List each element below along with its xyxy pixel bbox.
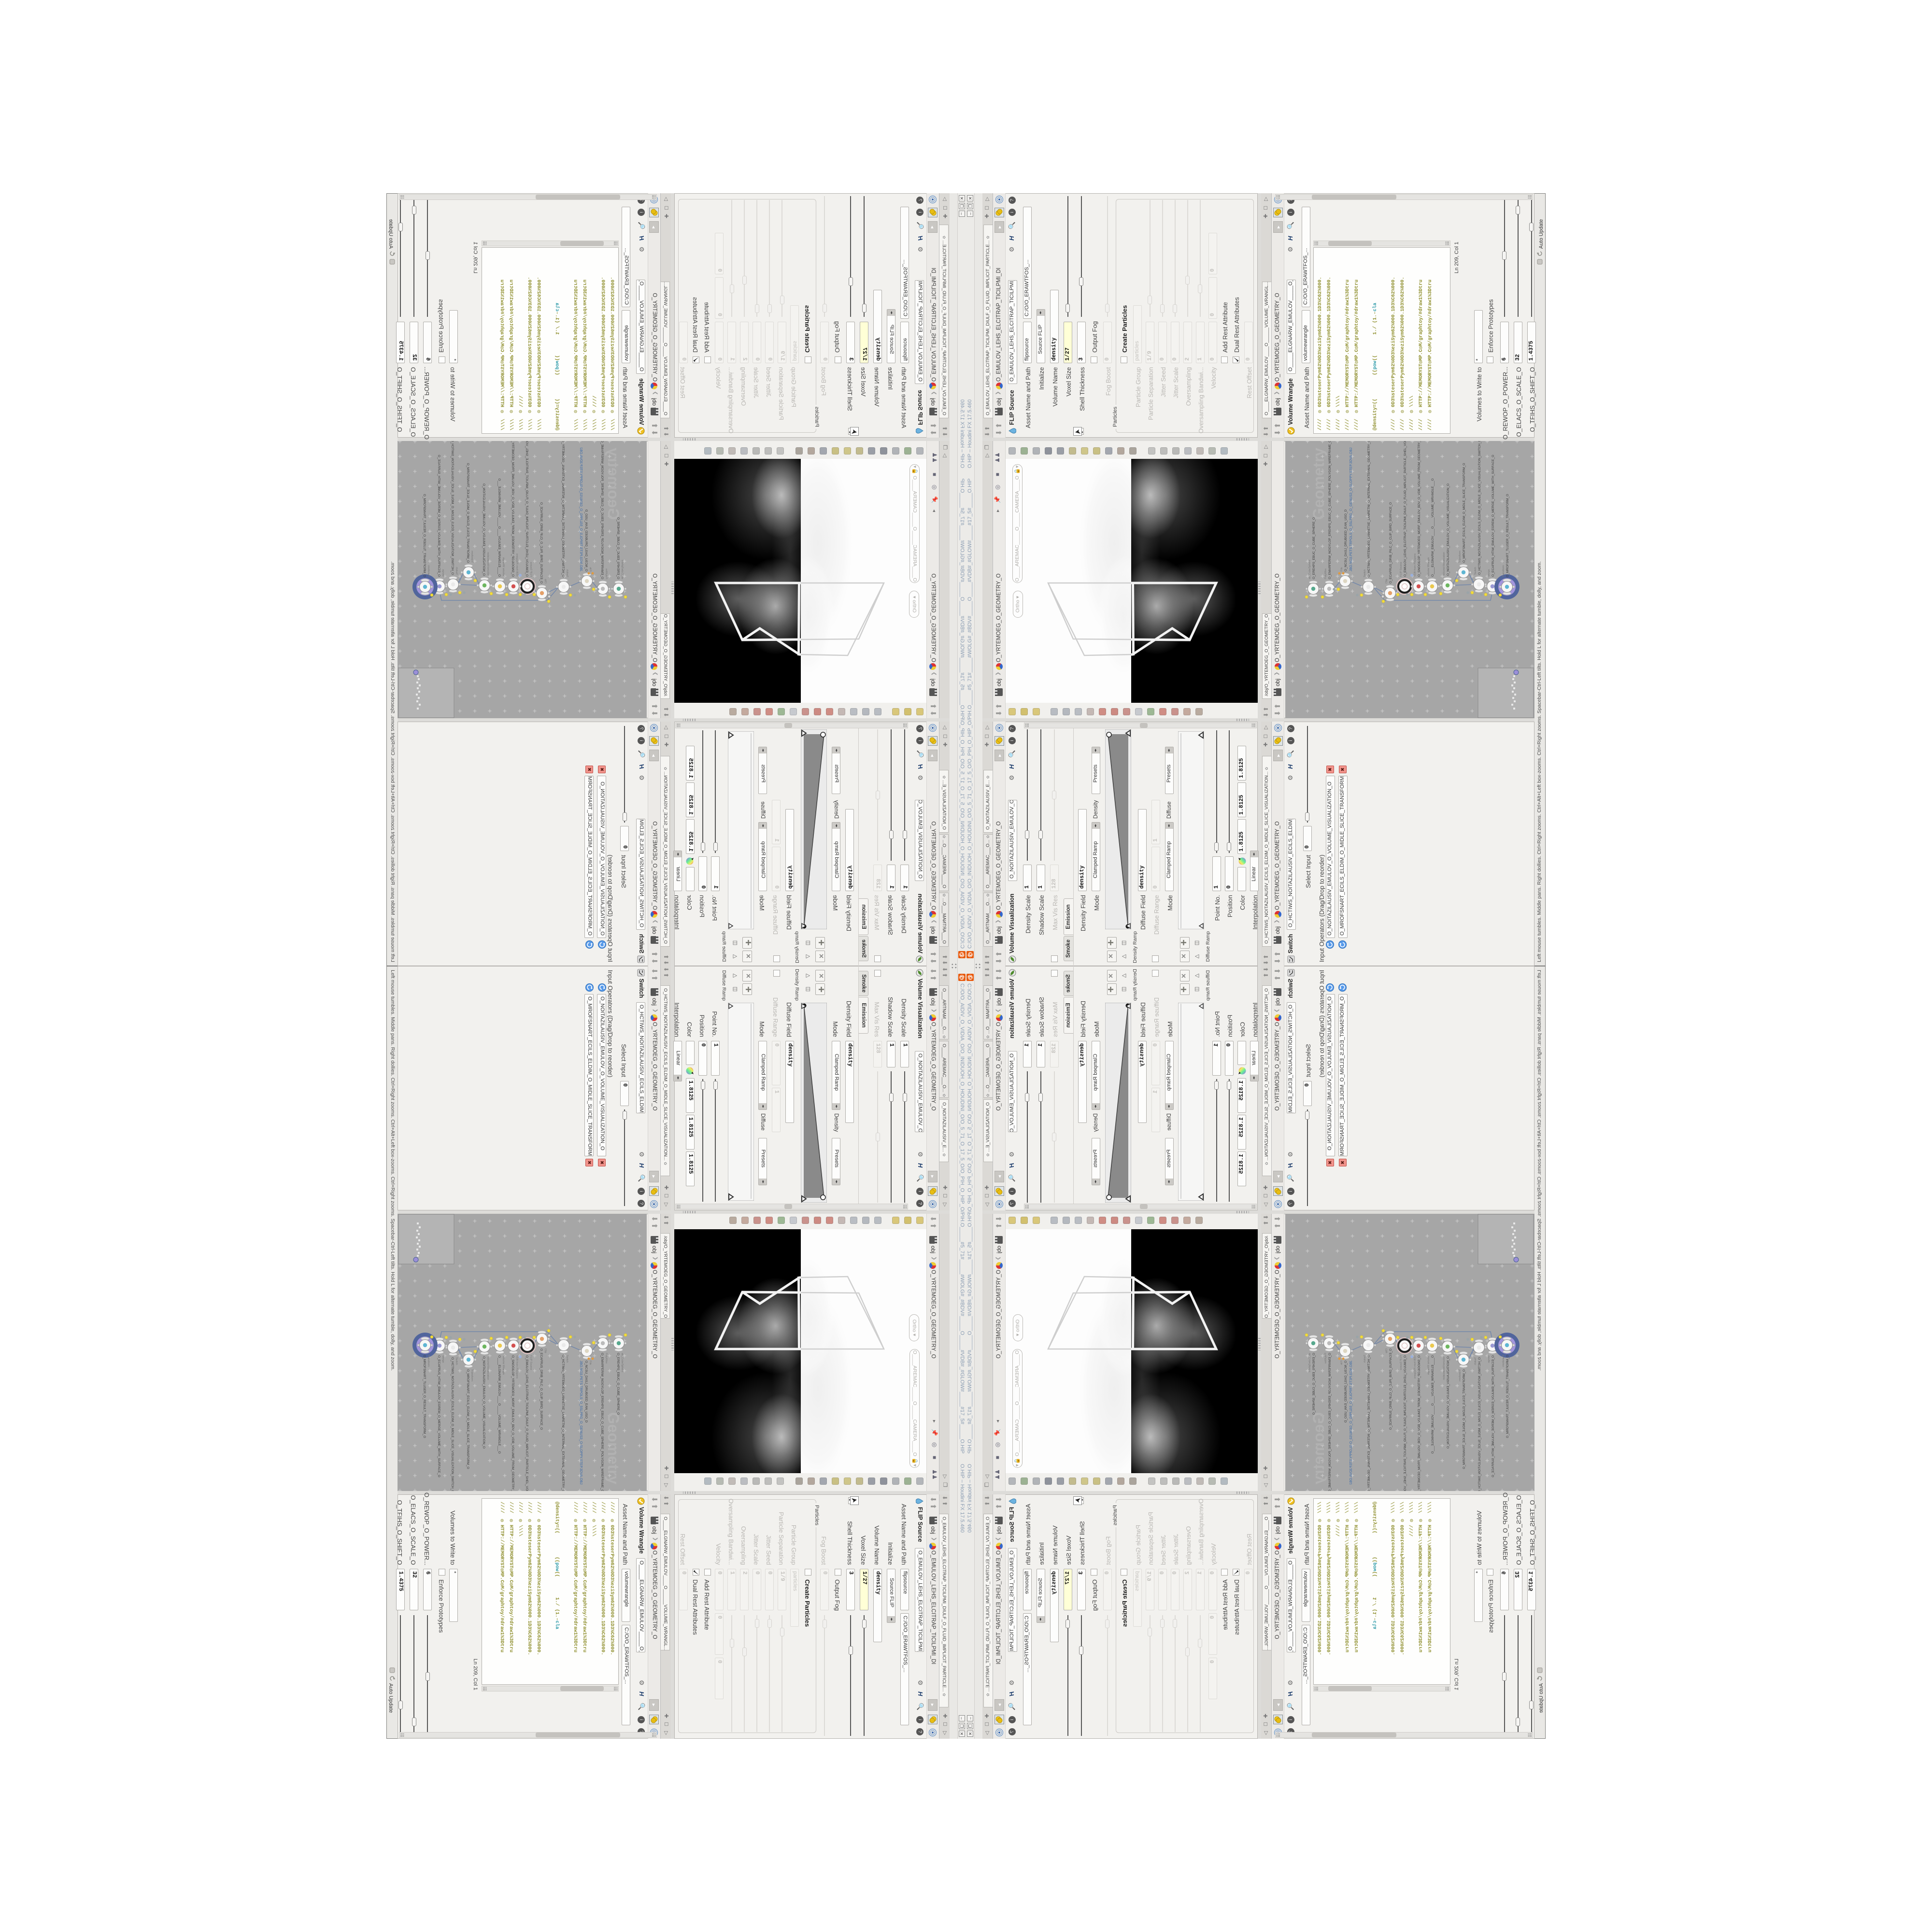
- svg-text:Transform: Transform: [470, 1369, 473, 1381]
- svg-text:PolyWire: PolyWire: [1324, 1353, 1327, 1364]
- svg-text:Merge: Merge: [441, 569, 444, 577]
- svg-text:ae_CubeSphere: ae_CubeSphere: [621, 560, 624, 579]
- svg-text:O_NOITAZILAUSIV_EMULOV_O_VOLUM: O_NOITAZILAUSIV_EMULOV_O_VOLUME_VISUALIZ…: [1447, 483, 1450, 576]
- svg-text:Merge: Merge: [1488, 569, 1491, 577]
- svg-text:VDB from Polygons: VDB from Polygons: [515, 1355, 518, 1378]
- svg-text:O_MROFSNART_TLUSER_O_RESULT_TR: O_MROFSNART_TLUSER_O_RESULT_TRANSFORM_O: [1506, 494, 1509, 577]
- svg-text:Clip: Clip: [1385, 1349, 1388, 1353]
- svg-text:Switch: Switch: [455, 1357, 458, 1365]
- svg-text:Switch: Switch: [1364, 1355, 1366, 1363]
- svg-text:O____ELGNARW_EMULOV____O_____V: O____ELGNARW_EMULOV____O_____VOLUME_WRAN…: [1431, 1355, 1435, 1454]
- svg-text:VDB from Polygons: VDB from Polygons: [515, 554, 518, 577]
- svg-text:VolumeVisualization: VolumeVisualization: [1443, 1356, 1446, 1380]
- svg-text:O_ECAFRUS_HTIW_EMULOV_EGREM_O_: O_ECAFRUS_HTIW_EMULOV_EGREM_O_MERGE_VOLU…: [1492, 1355, 1495, 1477]
- svg-text:O_HCTIWS_NOITAZILAUSIV_ECILS_E: O_HCTIWS_NOITAZILAUSIV_ECILS_ELDIM_O_MID…: [1478, 1357, 1481, 1491]
- svg-text:O_NOITAZILAUSIV_EMULOV_O_VOLUM: O_NOITAZILAUSIV_EMULOV_O_VOLUME_VISUALIZ…: [482, 483, 485, 576]
- svg-text:O_ECAFRUS_HTIW_EMULOV_EGREM_O_: O_ECAFRUS_HTIW_EMULOV_EGREM_O_MERGE_VOLU…: [437, 455, 440, 577]
- svg-text:Transform: Transform: [1502, 565, 1505, 577]
- svg-text:Switch: Switch: [566, 569, 568, 577]
- svg-text:Transform: Transform: [470, 551, 473, 563]
- svg-text:O_EMULOV_LEHS_ELCITRAP_TICILPM: O_EMULOV_LEHS_ELCITRAP_TICILPMI_DIULF_O_…: [1404, 441, 1407, 577]
- svg-text:JBO.NO3.PETS.TRPOLS_O_5SLPRG_O: JBO.NO3.PETS.TRPOLS_O_5SLPRG_O_GENUS3_O-…: [579, 1361, 582, 1484]
- svg-text:O_SNOGILOP_YRTEMOEG_MORF_EMULO: O_SNOGILOP_YRTEMOEG_MORF_EMULOV_BDV_O_VD…: [1418, 441, 1421, 577]
- svg-text:O_ECAFRUS_HTIW_EMULOV_EGREM_O_: O_ECAFRUS_HTIW_EMULOV_EGREM_O_MERGE_VOLU…: [1492, 455, 1495, 577]
- svg-text:O_SNOGILOP_YRTEMOEG_MORF_EMULO: O_SNOGILOP_YRTEMOEG_MORF_EMULOV_BDV_O_VD…: [1418, 1355, 1421, 1491]
- svg-text:Volume Wrangle: Volume Wrangle: [1427, 1355, 1430, 1375]
- svg-text:O_EMARFERIW_NOGYLOP_EREHPS_EBU: O_EMARFERIW_NOGYLOP_EREHPS_EBUC_O_CUBE_S…: [600, 1353, 604, 1491]
- svg-text:Geometry: Geometry: [605, 1412, 622, 1485]
- svg-text:PolyWire: PolyWire: [605, 1353, 608, 1364]
- svg-text:Volume Wrangle: Volume Wrangle: [1427, 557, 1430, 577]
- svg-text:O_MROFSNART_TLUSER_O_RESULT_TR: O_MROFSNART_TLUSER_O_RESULT_TRANSFORM_O: [423, 1355, 426, 1438]
- svg-text:O_SNOGILOP_YRTEMOEG_MORF_EMULO: O_SNOGILOP_YRTEMOEG_MORF_EMULOV_BDV_O_VD…: [511, 1355, 514, 1491]
- svg-text:FLIP Source: FLIP Source: [1400, 1355, 1403, 1370]
- svg-text:O_ECAFRUS_DRIB_PILC_O_CLIP_BIR: O_ECAFRUS_DRIB_PILC_O_CLIP_BIRD_SURFACE_…: [1389, 502, 1392, 583]
- svg-text:Geometry: Geometry: [1310, 448, 1327, 520]
- svg-text:JBO.NO3.PETS.TRPOLS_O_5SLPRG_O: JBO.NO3.PETS.TRPOLS_O_5SLPRG_O_GENUS3_O-…: [1350, 448, 1353, 571]
- svg-text:Clip: Clip: [1385, 579, 1388, 583]
- svg-text:Switch: Switch: [1474, 567, 1477, 575]
- svg-text:FLIP Source: FLIP Source: [1400, 562, 1403, 577]
- svg-text:O____ELGNARW_EMULOV____O_____V: O____ELGNARW_EMULOV____O_____VOLUME_WRAN…: [1431, 478, 1435, 577]
- svg-text:O_HCTIWS_YRTEMOEG_LANRETXE_LAN: O_HCTIWS_YRTEMOEG_LANRETXE_LANRETNI_O_IN…: [1367, 1355, 1371, 1491]
- svg-text:Transform: Transform: [1459, 1369, 1462, 1381]
- svg-text:O_HCTIWS_YRTEMOEG_LANRETXE_LAN: O_HCTIWS_YRTEMOEG_LANRETXE_LANRETNI_O_IN…: [1367, 441, 1371, 577]
- svg-text:O_HCTIWS_NOITAZILAUSIV_ECILS_E: O_HCTIWS_NOITAZILAUSIV_ECILS_ELDIM_O_MID…: [451, 441, 454, 575]
- svg-text:Switch: Switch: [455, 567, 458, 575]
- svg-text:Merge: Merge: [441, 1355, 444, 1363]
- svg-text:ae_CubeSphere: ae_CubeSphere: [1308, 560, 1311, 579]
- svg-text:O_NOITAZILAUSIV_EMULOV_O_VOLUM: O_NOITAZILAUSIV_EMULOV_O_VOLUME_VISUALIZ…: [482, 1356, 485, 1449]
- svg-text:VolumeVisualization: VolumeVisualization: [486, 1356, 489, 1380]
- svg-text:JBO.NO3.PETS.TRPOLS_O_5SLPRG_O: JBO.NO3.PETS.TRPOLS_O_5SLPRG_O_GENUS3_O-…: [579, 448, 582, 571]
- svg-text:O_HCTIWS_YRTEMOEG_LANRETXE_LAN: O_HCTIWS_YRTEMOEG_LANRETXE_LANRETNI_O_IN…: [561, 441, 565, 577]
- svg-text:O_EMULOV_LEHS_ELCITRAP_TICILPM: O_EMULOV_LEHS_ELCITRAP_TICILPMI_DIULF_O_…: [525, 441, 528, 577]
- svg-text:Merge: Merge: [1488, 1355, 1491, 1363]
- svg-text:O_EREHPS_EBUC_O_CUBE_SPHERE_O: O_EREHPS_EBUC_O_CUBE_SPHERE_O: [616, 1353, 620, 1415]
- svg-text:O_MROFSNART_ECILS_ELDIM_O_MIDL: O_MROFSNART_ECILS_ELDIM_O_MIDLE_SLICE_TR…: [466, 463, 469, 563]
- svg-text:O_MROFSNART_ECILS_ELDIM_O_MIDL: O_MROFSNART_ECILS_ELDIM_O_MIDLE_SLICE_TR…: [1463, 463, 1466, 563]
- svg-text:O_MROFSNART_ECILS_ELDIM_O_MIDL: O_MROFSNART_ECILS_ELDIM_O_MIDLE_SLICE_TR…: [466, 1369, 469, 1469]
- svg-text:O_MROFSNART_TLUSER_O_RESULT_TR: O_MROFSNART_TLUSER_O_RESULT_TRANSFORM_O: [1506, 1355, 1509, 1438]
- svg-text:O_SNOGILOP_YRTEMOEG_MORF_EMULO: O_SNOGILOP_YRTEMOEG_MORF_EMULOV_BDV_O_VD…: [511, 441, 514, 577]
- svg-text:O_ECAFRUS_DRIB_PILC_O_CLIP_BIR: O_ECAFRUS_DRIB_PILC_O_CLIP_BIRD_SURFACE_…: [540, 502, 543, 583]
- svg-text:Transform: Transform: [1502, 1355, 1505, 1367]
- svg-text:Geometry: Geometry: [1310, 1412, 1327, 1485]
- svg-text:Switch: Switch: [1474, 1357, 1477, 1365]
- svg-text:Clip: Clip: [544, 579, 547, 583]
- svg-text:O_ECAFRUS_HTIW_EMULOV_EGREM_O_: O_ECAFRUS_HTIW_EMULOV_EGREM_O_MERGE_VOLU…: [437, 1355, 440, 1477]
- svg-text:O_EREHPS_EBUC_O_CUBE_SPHERE_O: O_EREHPS_EBUC_O_CUBE_SPHERE_O: [1312, 517, 1316, 579]
- svg-text:VDB from Polygons: VDB from Polygons: [1414, 1355, 1417, 1378]
- svg-text:O____ELGNARW_EMULOV____O_____V: O____ELGNARW_EMULOV____O_____VOLUME_WRAN…: [497, 1355, 501, 1454]
- svg-text:Switch: Switch: [566, 1355, 568, 1363]
- svg-text:File: File: [1340, 1361, 1343, 1365]
- svg-text:File: File: [589, 567, 592, 571]
- svg-text:O_EMARFERIW_NOGYLOP_EREHPS_EBU: O_EMARFERIW_NOGYLOP_EREHPS_EBUC_O_CUBE_S…: [600, 441, 604, 579]
- svg-text:O____ELGNARW_EMULOV____O_____V: O____ELGNARW_EMULOV____O_____VOLUME_WRAN…: [497, 478, 501, 577]
- svg-text:Volume Wrangle: Volume Wrangle: [502, 557, 505, 577]
- svg-text:O_NCSU_DASJ_DRUBGED_EAN_USO_D: O_NCSU_DASJ_DRUBGED_EAN_USO_D: [1344, 1361, 1348, 1422]
- svg-text:VolumeVisualization: VolumeVisualization: [486, 552, 489, 576]
- svg-text:Clip: Clip: [544, 1349, 547, 1353]
- svg-text:ae_CubeSphere: ae_CubeSphere: [1308, 1353, 1311, 1372]
- svg-text:Transform: Transform: [427, 565, 430, 577]
- svg-text:O_EMARFERIW_NOGYLOP_EREHPS_EBU: O_EMARFERIW_NOGYLOP_EREHPS_EBUC_O_CUBE_S…: [1328, 441, 1332, 579]
- svg-text:O_EMULOV_LEHS_ELCITRAP_TICILPM: O_EMULOV_LEHS_ELCITRAP_TICILPMI_DIULF_O_…: [1404, 1355, 1407, 1491]
- svg-text:O_MROFSNART_TLUSER_O_RESULT_TR: O_MROFSNART_TLUSER_O_RESULT_TRANSFORM_O: [423, 494, 426, 577]
- svg-text:O_ECAFRUS_DRIB_PILC_O_CLIP_BIR: O_ECAFRUS_DRIB_PILC_O_CLIP_BIRD_SURFACE_…: [540, 1349, 543, 1430]
- svg-text:O_NCSU_DASJ_DRUBGED_EAN_USO_D: O_NCSU_DASJ_DRUBGED_EAN_USO_D: [584, 510, 588, 571]
- svg-text:Geometry: Geometry: [605, 448, 622, 520]
- svg-text:O_HCTIWS_NOITAZILAUSIV_ECILS_E: O_HCTIWS_NOITAZILAUSIV_ECILS_ELDIM_O_MID…: [451, 1357, 454, 1491]
- svg-text:O_HCTIWS_NOITAZILAUSIV_ECILS_E: O_HCTIWS_NOITAZILAUSIV_ECILS_ELDIM_O_MID…: [1478, 441, 1481, 575]
- svg-text:O_EREHPS_EBUC_O_CUBE_SPHERE_O: O_EREHPS_EBUC_O_CUBE_SPHERE_O: [1312, 1353, 1316, 1415]
- svg-text:Transform: Transform: [427, 1355, 430, 1367]
- svg-text:PolyWire: PolyWire: [605, 568, 608, 579]
- svg-text:VDB from Polygons: VDB from Polygons: [1414, 554, 1417, 577]
- svg-text:O_NOITAZILAUSIV_EMULOV_O_VOLUM: O_NOITAZILAUSIV_EMULOV_O_VOLUME_VISUALIZ…: [1447, 1356, 1450, 1449]
- svg-text:O_ECAFRUS_DRIB_PILC_O_CLIP_BIR: O_ECAFRUS_DRIB_PILC_O_CLIP_BIRD_SURFACE_…: [1389, 1349, 1392, 1430]
- svg-text:Transform: Transform: [1459, 551, 1462, 563]
- svg-text:JBO.NO3.PETS.TRPOLS_O_5SLPRG_O: JBO.NO3.PETS.TRPOLS_O_5SLPRG_O_GENUS3_O-…: [1350, 1361, 1353, 1484]
- svg-text:O_MROFSNART_ECILS_ELDIM_O_MIDL: O_MROFSNART_ECILS_ELDIM_O_MIDLE_SLICE_TR…: [1463, 1369, 1466, 1469]
- svg-text:File: File: [1340, 567, 1343, 571]
- svg-text:FLIP Source: FLIP Source: [529, 562, 532, 577]
- svg-text:File: File: [589, 1361, 592, 1365]
- svg-text:PolyWire: PolyWire: [1324, 568, 1327, 579]
- svg-text:O_NCSU_DASJ_DRUBGED_EAN_USO_D: O_NCSU_DASJ_DRUBGED_EAN_USO_D: [584, 1361, 588, 1422]
- svg-text:FLIP Source: FLIP Source: [529, 1355, 532, 1370]
- svg-text:O_HCTIWS_YRTEMOEG_LANRETXE_LAN: O_HCTIWS_YRTEMOEG_LANRETXE_LANRETNI_O_IN…: [561, 1355, 565, 1491]
- svg-text:VolumeVisualization: VolumeVisualization: [1443, 552, 1446, 576]
- svg-text:ae_CubeSphere: ae_CubeSphere: [621, 1353, 624, 1372]
- svg-text:Switch: Switch: [1364, 569, 1366, 577]
- svg-text:O_EMARFERIW_NOGYLOP_EREHPS_EBU: O_EMARFERIW_NOGYLOP_EREHPS_EBUC_O_CUBE_S…: [1328, 1353, 1332, 1491]
- svg-text:O_EMULOV_LEHS_ELCITRAP_TICILPM: O_EMULOV_LEHS_ELCITRAP_TICILPMI_DIULF_O_…: [525, 1355, 528, 1491]
- svg-text:O_NCSU_DASJ_DRUBGED_EAN_USO_D: O_NCSU_DASJ_DRUBGED_EAN_USO_D: [1344, 510, 1348, 571]
- svg-text:O_EREHPS_EBUC_O_CUBE_SPHERE_O: O_EREHPS_EBUC_O_CUBE_SPHERE_O: [616, 517, 620, 579]
- svg-text:Volume Wrangle: Volume Wrangle: [502, 1355, 505, 1375]
